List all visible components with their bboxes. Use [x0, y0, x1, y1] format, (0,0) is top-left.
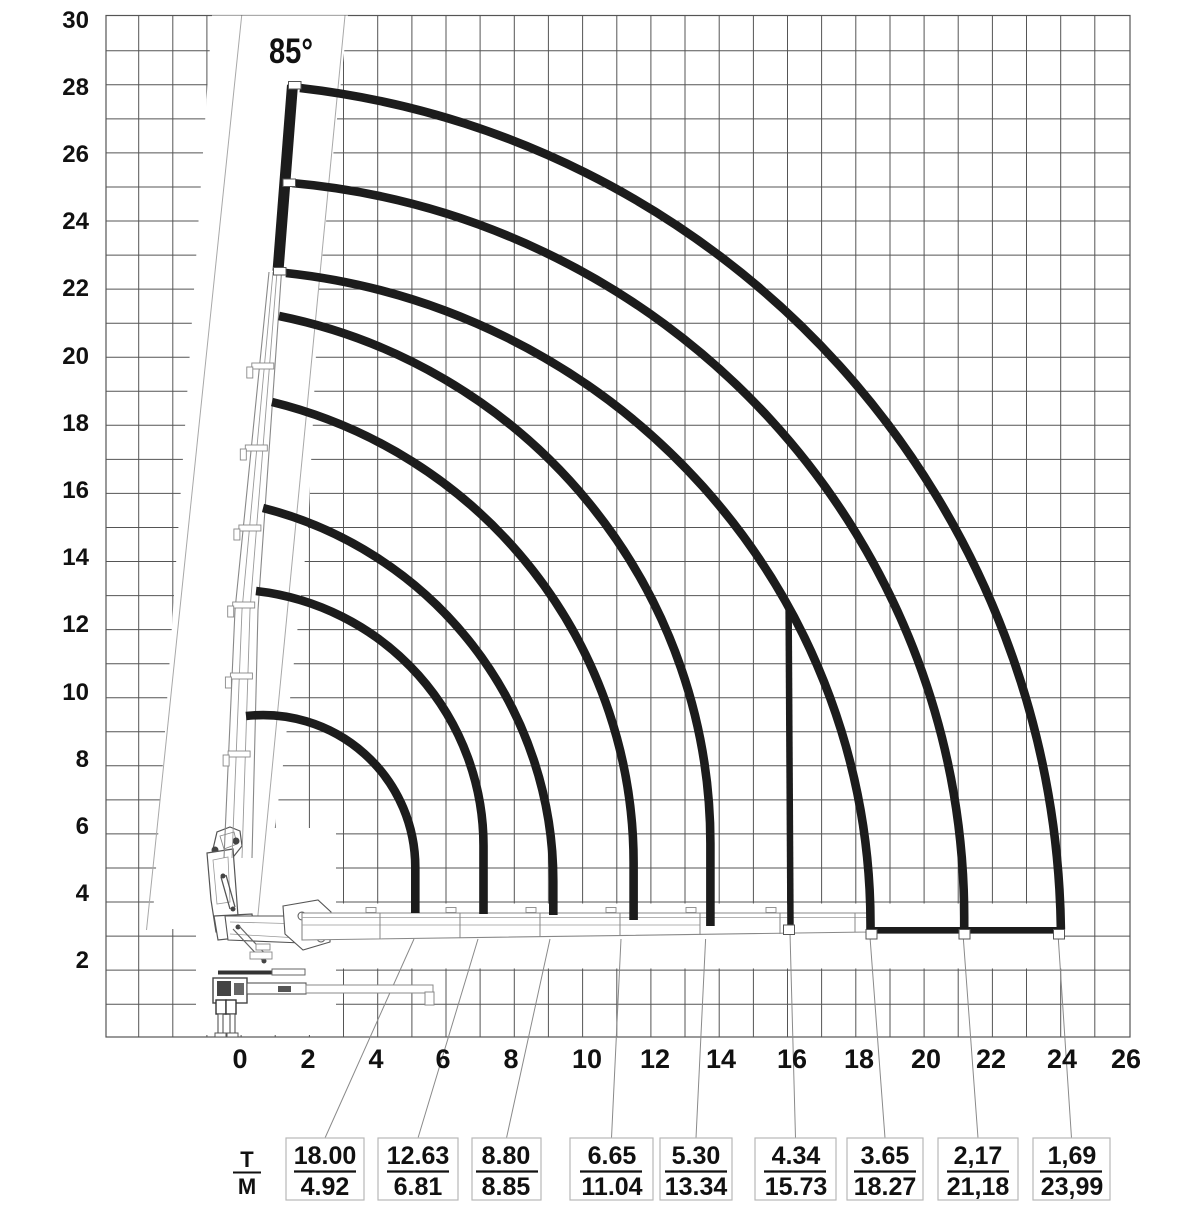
- svg-text:1,69: 1,69: [1048, 1142, 1097, 1170]
- svg-text:18: 18: [62, 410, 89, 437]
- svg-text:5.30: 5.30: [672, 1142, 721, 1170]
- svg-text:15.73: 15.73: [765, 1173, 828, 1201]
- svg-text:30: 30: [62, 7, 89, 34]
- svg-text:4: 4: [368, 1044, 383, 1074]
- svg-text:3.65: 3.65: [861, 1142, 910, 1170]
- svg-text:13.34: 13.34: [665, 1173, 728, 1201]
- svg-text:6.65: 6.65: [588, 1142, 637, 1170]
- svg-text:22: 22: [976, 1044, 1006, 1074]
- svg-text:2,17: 2,17: [954, 1142, 1003, 1170]
- svg-text:16: 16: [62, 477, 89, 504]
- svg-text:2: 2: [76, 947, 89, 974]
- svg-text:10: 10: [572, 1044, 602, 1074]
- svg-text:18: 18: [844, 1044, 874, 1074]
- svg-text:12: 12: [62, 611, 89, 638]
- svg-text:12: 12: [640, 1044, 670, 1074]
- svg-text:10: 10: [62, 679, 89, 706]
- svg-text:28: 28: [62, 74, 89, 101]
- svg-text:12.63: 12.63: [387, 1142, 450, 1170]
- svg-text:0: 0: [232, 1044, 247, 1074]
- svg-text:14: 14: [706, 1044, 736, 1074]
- svg-text:18.27: 18.27: [854, 1173, 917, 1201]
- svg-text:18.00: 18.00: [294, 1142, 357, 1170]
- svg-text:22: 22: [62, 275, 89, 302]
- svg-text:14: 14: [62, 544, 89, 571]
- svg-text:85°: 85°: [269, 32, 313, 71]
- svg-text:4: 4: [76, 880, 90, 907]
- svg-text:21,18: 21,18: [947, 1173, 1010, 1201]
- svg-text:6.81: 6.81: [394, 1173, 443, 1201]
- svg-text:4.92: 4.92: [301, 1173, 350, 1201]
- svg-text:20: 20: [62, 343, 89, 370]
- svg-text:24: 24: [1047, 1044, 1077, 1074]
- svg-text:20: 20: [911, 1044, 941, 1074]
- svg-text:8: 8: [76, 746, 89, 773]
- svg-text:T: T: [240, 1147, 254, 1172]
- svg-text:6: 6: [435, 1044, 450, 1074]
- svg-text:8.80: 8.80: [482, 1142, 531, 1170]
- svg-text:26: 26: [62, 141, 89, 168]
- svg-text:8.85: 8.85: [482, 1173, 531, 1201]
- svg-text:2: 2: [300, 1044, 315, 1074]
- svg-text:11.04: 11.04: [581, 1173, 642, 1201]
- svg-text:4.34: 4.34: [772, 1142, 821, 1170]
- svg-text:24: 24: [62, 208, 89, 235]
- svg-text:M: M: [238, 1174, 256, 1199]
- svg-text:26: 26: [1111, 1044, 1141, 1074]
- svg-text:6: 6: [76, 813, 89, 840]
- svg-text:16: 16: [777, 1044, 807, 1074]
- svg-text:23,99: 23,99: [1041, 1173, 1104, 1201]
- svg-text:8: 8: [503, 1044, 518, 1074]
